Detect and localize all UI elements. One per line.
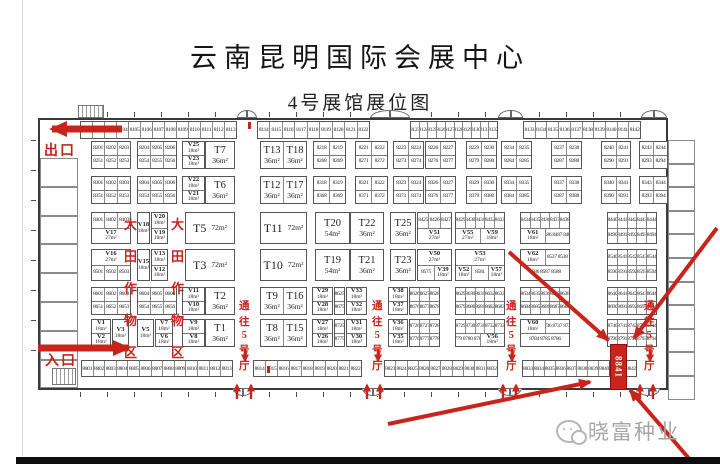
booth-cell: 8379 (467, 191, 481, 204)
t-booth: T1172m² (261, 213, 306, 243)
booth-cell: 8243 (640, 142, 653, 155)
sold-marker (267, 366, 270, 373)
booth-block: 8440844184428443844484908491849284938494 (607, 212, 657, 244)
booth-cell: 8441 (617, 213, 627, 228)
strip-booth: 8125 (427, 122, 436, 138)
booth-block: T1172m² (260, 212, 307, 244)
stairs-bottom-left (52, 368, 76, 385)
strip-booth: 8808 (162, 361, 174, 376)
booth-cell: 8322 (371, 177, 387, 190)
v-booth: V5618m² (480, 334, 505, 347)
strip-booth: 8116 (282, 122, 294, 138)
t-booth: T936m² (261, 288, 283, 314)
highlighted-booth: 8841 (610, 344, 627, 390)
v-booth: V2818m² (313, 302, 332, 315)
v-booth: V718m² (156, 320, 172, 333)
strip-booth: 8839 (587, 361, 598, 376)
strip-booth: 8840 (598, 361, 609, 376)
booth-block: 87258775 (334, 319, 345, 347)
booth-strip: 8801880288038804880588068807880888098810… (81, 360, 233, 377)
strip-booth: 8108 (164, 122, 176, 138)
door (637, 388, 660, 396)
booth-cell: 8540 (608, 250, 617, 265)
strip-booth: 8821 (337, 361, 349, 376)
v-booth: V5527m² (456, 229, 480, 244)
booth-strip: 8133813481358136813781388139814081418142 (523, 121, 641, 139)
strip-booth: 8831 (474, 361, 485, 376)
strip-booth: 8141 (617, 122, 629, 138)
strip-booth: 8101 (81, 122, 92, 138)
booth-cell: 8630 (465, 288, 475, 301)
booth-cell: 8586 8587 8588 (521, 266, 569, 281)
v-booth: V1818m² (138, 213, 149, 243)
booth-cell: 8434 (521, 213, 530, 228)
booth-block: T836m²T1536m² (260, 319, 307, 347)
strip-booth: 8816 (277, 361, 289, 376)
booth-block: 862686278628867686778678 (409, 287, 440, 315)
booth-cell: 8222 (371, 142, 387, 155)
booth-cell: 8634 (521, 288, 530, 301)
booth-cell: 8652 (104, 302, 117, 315)
v-booth: V3918m² (434, 266, 451, 281)
booth-cell: 8542 (627, 250, 637, 265)
v-booth: V118m² (92, 320, 110, 333)
t-booth: T2536m² (391, 213, 415, 243)
strip-booth: 8835 (544, 361, 555, 376)
v-booth: V5127m² (418, 229, 451, 244)
booth-cell: 8686 (540, 302, 550, 315)
strip-booth: 8110 (188, 122, 200, 138)
booth-cell: 8731 (475, 320, 485, 333)
zone-label: 大田作物区 (124, 214, 137, 361)
booth-cell: 8594 (646, 266, 656, 281)
booth-cell: 8305 (150, 177, 163, 190)
booth-cell: 8393 (640, 191, 653, 204)
v-booth: V2318m² (183, 156, 204, 169)
strip-booth: 8820 (325, 361, 337, 376)
t-booth: T1536m² (283, 320, 306, 346)
right-wing-room (668, 140, 695, 164)
booth-cell: 8491 (617, 229, 627, 244)
strip-booth: 8120 (332, 122, 344, 138)
v-booth: V3518m² (389, 334, 407, 347)
booth-block: 8223822482738274 (393, 141, 424, 169)
strip-booth: 8804 (116, 361, 128, 376)
booth-block: V6218m²8537 85388586 8587 8588 (520, 249, 570, 281)
strip-booth: 8811 (197, 361, 209, 376)
strip-booth: 8842 (626, 361, 636, 376)
booth-cell: 8631 (475, 288, 485, 301)
booth-strip: 811481158116811781188119812081218122 (257, 121, 370, 139)
v-booth: V2618m² (313, 334, 332, 347)
booth-strip: 8101810281038104810581068107810881098110… (80, 121, 237, 139)
booth-cell: 8285 (516, 156, 531, 169)
v-booth: V2118m² (183, 191, 204, 204)
strip-booth: 8819 (313, 361, 325, 376)
right-wing-room (668, 305, 695, 329)
booth-block: V1818m² (137, 212, 150, 244)
t-booth: T372m² (186, 250, 234, 280)
booth-block: V118m²V218m² (91, 319, 111, 347)
booth-cell: 8544 (646, 250, 656, 265)
v-booth: V1018m² (183, 302, 204, 315)
booth-cell: 8683 (494, 302, 504, 315)
booth-block: V2718m²V2618m² (312, 319, 333, 347)
booth-cell: 8272 (371, 156, 387, 169)
booth-cell: 8627 (419, 288, 429, 301)
booth-cell: 8277 (440, 156, 455, 169)
booth-cell: 8235 (516, 142, 531, 155)
booth-cell: 8626 (410, 288, 419, 301)
booth-block: T2054m² (315, 212, 350, 244)
booth-cell: 8221 (356, 142, 371, 155)
booth-block: 8221822282718272 (355, 141, 388, 169)
strip-booth: 8135 (546, 122, 558, 138)
strip-booth: 8124 (419, 122, 428, 138)
aisle-label: 通往5号厅 (506, 298, 517, 373)
booth-cell: 8430 (465, 213, 475, 228)
booth-block: 8343834483938394 (639, 176, 668, 204)
booth-cell: 8437 (549, 213, 559, 228)
booth-cell: 8224 (408, 142, 423, 155)
booth-block: 8329833083798380 (466, 176, 497, 204)
booth-block: T236m² (205, 287, 235, 315)
booth-cell: 8654 (138, 302, 150, 315)
right-wing-room (668, 376, 695, 400)
strip-booth: 8826 (418, 361, 429, 376)
booth-block: 830483058306835483558356 (137, 176, 177, 204)
left-wing-room (40, 187, 78, 216)
booth-cell: 8252 (104, 156, 117, 169)
bottom-black-bar (16, 457, 720, 464)
booth-cell: 8237 (552, 142, 566, 155)
booth-cell: 8636 (540, 288, 550, 301)
booth-block: V5327m²V5218m²8581V5718m² (455, 249, 505, 281)
booth-cell: 8502 (104, 266, 117, 281)
booth-cell: 8692 (627, 302, 637, 315)
booth-cell: 8318 (314, 177, 329, 190)
booth-cell: 8280 (481, 156, 496, 169)
t-booth: T2136m² (351, 250, 383, 280)
booth-cell: 8680 (465, 302, 475, 315)
booth-cell: 8324 (408, 177, 423, 190)
booth-block: 8321832283718372 (355, 176, 388, 204)
booth-cell: 8279 (467, 156, 481, 169)
booth-cell: 8442 (627, 213, 637, 228)
booth-cell: 8628 (429, 288, 439, 301)
booth-cell: 8291 (616, 156, 631, 169)
strip-booth: 8827 (429, 361, 440, 376)
booth-cell: 8777 (419, 334, 429, 347)
booth-cell: 8676 (410, 302, 419, 315)
strip-booth: 8133 (524, 122, 535, 138)
left-wing-room (40, 216, 78, 245)
booth-block: 820182028203825182528253 (91, 141, 131, 169)
strip-booth: 8832 (486, 361, 497, 376)
strip-booth: 8137 (570, 122, 582, 138)
booth-cell: 8401 (92, 213, 104, 228)
booth-cell: 8633 (494, 288, 504, 301)
booth-cell: 8388 (566, 191, 581, 204)
booth-cell: 8438 (559, 213, 569, 228)
booth-block: T572m² (185, 212, 235, 244)
v-booth: V6118m² (521, 229, 545, 244)
booth-cell: 8268 (314, 156, 329, 169)
booth-block: 8237823882878288 (551, 141, 582, 169)
strip-booth: 8142 (628, 122, 640, 138)
strip-booth: 8119 (319, 122, 331, 138)
booth-cell: 8323 (394, 177, 408, 190)
booth-cell: 8575 (418, 266, 434, 281)
booth-cell: 8293 (640, 156, 653, 169)
booth-block: T2136m² (350, 249, 384, 281)
strip-booth: 8818 (301, 361, 313, 376)
v-booth: V3718m² (389, 302, 407, 315)
booth-cell: 8374 (408, 191, 423, 204)
v-booth: V1218m² (152, 266, 167, 281)
booth-cell: 8685 (530, 302, 540, 315)
booth-cell: 8254 (138, 156, 150, 169)
strip-booth: 8813 (220, 361, 232, 376)
booth-block: 842584268427V5127m² (417, 212, 452, 244)
strip-booth: 8127 (445, 122, 454, 138)
booth-block: 8240824182908291 (601, 141, 631, 169)
booth-block: 8334833583848385 (501, 176, 532, 204)
booth-cell: 8319 (329, 177, 345, 190)
booth-cell: 8501 (92, 266, 104, 281)
v-booth: V2018m² (152, 213, 167, 228)
t-booth: T736m² (206, 142, 234, 168)
booth-cell: 8638 (559, 288, 569, 301)
article-image: 云南昆明国际会展中心 4号展馆展位图 810181028103810481058… (0, 0, 720, 464)
v-booth: V818m² (183, 334, 204, 347)
door (362, 388, 384, 396)
aisle-label: 通往5号厅 (372, 298, 383, 373)
booth-cell: 8276 (426, 156, 440, 169)
booth-block: V2218m²V2118m² (182, 176, 205, 204)
booth-cell: 8335 (516, 177, 531, 190)
booth-block: 8629863086318632863386798680868186828683 (455, 287, 505, 315)
booth-cell: 8351 (92, 191, 104, 204)
booth-cell: 8244 (653, 142, 667, 155)
booth-block: V2518m²V2318m² (182, 141, 205, 169)
strip-booth: 8806 (139, 361, 151, 376)
watermark-brand: 晓富种业 (588, 416, 680, 446)
strip-booth: 8833 (523, 361, 533, 376)
booth-cell: 8433 (494, 213, 504, 228)
booth-cell: 8334 (502, 177, 516, 190)
booth-block: 8337833883878388 (551, 176, 582, 204)
v-booth: V518m² (138, 320, 153, 346)
booth-cell: 8326 (426, 177, 440, 190)
booth-block: T936m²T1636m² (260, 287, 307, 315)
v-booth: V5027m² (418, 250, 451, 265)
v-booth: V2518m² (183, 142, 204, 155)
booth-cell: 8321 (356, 177, 371, 190)
floor-plan: 8101810281038104810581068107810881098110… (0, 0, 720, 464)
booth-block: 8540854185428543854485908591859285938594 (607, 249, 657, 281)
booth-block: 8229823082798280 (466, 141, 497, 169)
v-booth: V2718m² (313, 320, 332, 333)
v-booth: V618m² (156, 334, 172, 347)
booth-block: T736m² (205, 141, 235, 169)
v-booth: V1518m² (138, 250, 149, 280)
strip-booth: 8114 (258, 122, 269, 138)
strip-booth: 8834 (533, 361, 544, 376)
booth-cell: 8629 (456, 288, 465, 301)
left-wing-room (40, 244, 78, 273)
booth-block: T136m² (205, 319, 235, 347)
v-booth: V5918m² (480, 229, 505, 244)
booth-cell: 8590 (608, 266, 617, 281)
t-booth: T636m² (206, 177, 234, 203)
booth-block: 8226822782768277 (425, 141, 456, 169)
strip-booth: 8107 (152, 122, 164, 138)
v-booth: V1118m² (183, 288, 204, 301)
booth-cell: 8290 (602, 156, 616, 169)
booth-block: T2336m² (390, 249, 416, 281)
v-booth: V2918m² (313, 288, 332, 301)
t-booth: T1236m² (261, 177, 283, 203)
strip-booth: 8104 (116, 122, 128, 138)
booth-cell: 8593 (636, 266, 646, 281)
booth-block: 86258675 (334, 287, 345, 315)
booth-cell: 8287 (552, 156, 566, 169)
strip-booth: 8118 (307, 122, 319, 138)
booth-block: 84298430843184328433V5527m²V5918m² (455, 212, 505, 244)
booth-cell: 8727 (419, 320, 429, 333)
booth-cell: 8681 (475, 302, 485, 315)
t-booth: T2236m² (351, 213, 383, 243)
booth-block: V2018m²V1918m² (151, 212, 168, 244)
booth-block: V1118m²V1018m² (182, 287, 205, 315)
booth-block: 820482058206825482558256 (137, 141, 177, 169)
booth-cell: 8675 (335, 302, 344, 315)
strip-booth: 8802 (93, 361, 105, 376)
v-booth: V3018m² (347, 334, 366, 347)
booth-block: 872687278728877687778778 (409, 319, 440, 347)
booth-cell: 8376 (426, 191, 440, 204)
strip-booth: 8838 (576, 361, 587, 376)
booth-cell: 8256 (163, 156, 176, 169)
strip-booth: 8805 (127, 361, 139, 376)
booth-cell: 8691 (617, 302, 627, 315)
booth-cell: 8219 (329, 142, 345, 155)
strip-booth: 8138 (582, 122, 594, 138)
booth-cell: 8677 (419, 302, 429, 315)
booth-cell: 8688 (559, 302, 569, 315)
strip-booth: 8122 (357, 122, 369, 138)
door (641, 110, 667, 118)
strip-booth: 8121 (344, 122, 356, 138)
t-booth: T1072m² (261, 250, 306, 280)
booth-cell: 8387 (552, 191, 566, 204)
strip-booth: 8136 (558, 122, 570, 138)
booth-cell: 8679 (456, 302, 465, 315)
t-booth: T572m² (186, 213, 234, 243)
v-booth: V2218m² (183, 177, 204, 190)
strip-booth: 8105 (128, 122, 140, 138)
booth-cell: 8543 (636, 250, 646, 265)
strip-booth: 8115 (269, 122, 281, 138)
booth-cell: 8602 (104, 288, 117, 301)
booth-block: T1236m²T1736m² (260, 176, 307, 204)
t-booth: T2336m² (391, 250, 415, 280)
right-wing-room (668, 187, 695, 211)
t-booth: T1836m² (283, 142, 306, 168)
booth-cell: 8687 (549, 302, 559, 315)
booth-cell: 8273 (394, 156, 408, 169)
booth-block: V1518m² (137, 249, 150, 281)
booth-cell: 8303 (117, 177, 130, 190)
booth-cell: 8352 (104, 191, 117, 204)
booth-cell: 8306 (163, 177, 176, 190)
left-wing-room (40, 273, 78, 302)
strip-booth: 8123 (411, 122, 419, 138)
booth-cell: 8640 (608, 288, 617, 301)
booth-cell: 8338 (566, 177, 581, 190)
booth-cell: 8492 (627, 229, 637, 244)
door (237, 110, 257, 118)
strip-booth: 8103 (104, 122, 116, 138)
booth-cell: 8432 (484, 213, 494, 228)
booth-block: V3818m²V3718m² (388, 287, 408, 315)
entrance-label: 入口 (45, 350, 77, 370)
booth-cell: 8201 (92, 142, 104, 155)
strip-booth: 8109 (176, 122, 188, 138)
booth-cell: 8274 (408, 156, 423, 169)
booth-cell: 8431 (475, 213, 485, 228)
strip-booth: 8129 (462, 122, 471, 138)
booth-block: 8243824482938294 (639, 141, 668, 169)
booth-block: 8340834183908391 (601, 176, 631, 204)
booth-cell: 8655 (150, 302, 163, 315)
booth-cell: 8373 (394, 191, 408, 204)
door (498, 110, 523, 118)
booth-block: 8326832783768377 (425, 176, 456, 204)
door (233, 388, 253, 396)
booth-cell: 8642 (627, 288, 637, 301)
strip-booth: 8140 (605, 122, 617, 138)
booth-cell: 8234 (502, 142, 516, 155)
booth-block: 8318831983688369 (313, 176, 346, 204)
strip-booth: 8117 (294, 122, 306, 138)
booth-cell: 8269 (329, 156, 345, 169)
booth-cell: 8537 8538 (545, 250, 570, 265)
booth-cell: 8226 (426, 142, 440, 155)
strip-booth: 8134 (535, 122, 547, 138)
booth-cell: 8355 (150, 191, 163, 204)
booth-cell: 8304 (138, 177, 150, 190)
booth-cell: 8402 (104, 213, 117, 228)
booth-cell: 8440 (608, 213, 617, 228)
booth-cell: 8341 (616, 177, 631, 190)
strip-booth: 8128 (454, 122, 463, 138)
booth-block: V3318m²V3218m² (346, 287, 367, 315)
strip-booth: 8825 (407, 361, 418, 376)
booth-cell: 8327 (440, 177, 455, 190)
booth-cell: 8742 (627, 320, 637, 333)
strip-booth: 8823 (385, 361, 395, 376)
right-wing-room (668, 211, 695, 235)
strip-booth: 8106 (140, 122, 152, 138)
booth-cell: 8204 (138, 142, 150, 155)
booth-cell: 8330 (481, 177, 496, 190)
watermark: 晓富种业 (556, 416, 680, 446)
strip-booth: 8102 (92, 122, 104, 138)
left-wing-room (40, 302, 78, 331)
strip-booth: 8810 (185, 361, 197, 376)
